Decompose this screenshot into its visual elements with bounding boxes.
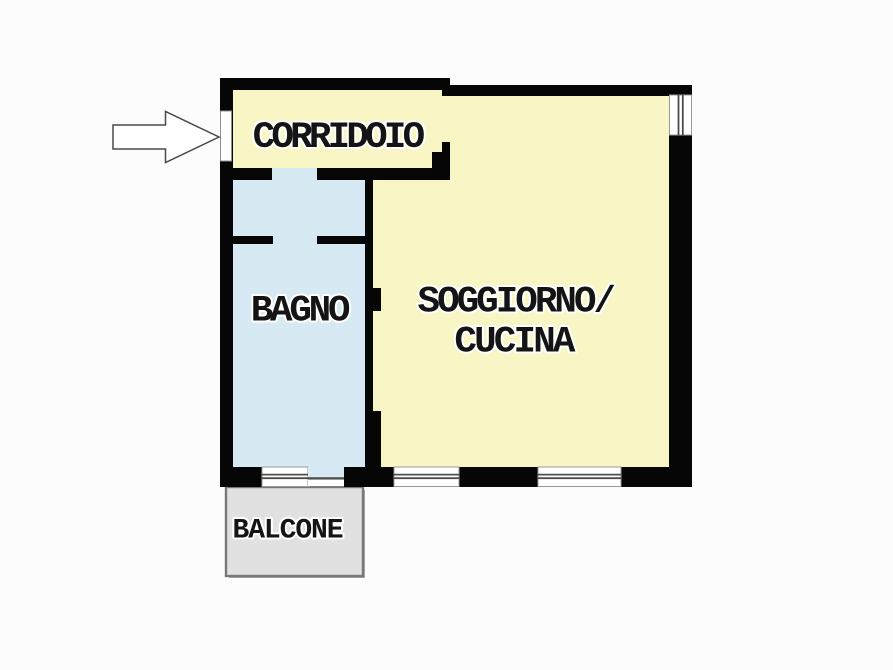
svg-text:CUCINA: CUCINA (454, 322, 576, 364)
svg-text:SOGGIORNO/: SOGGIORNO/ (418, 282, 615, 324)
svg-text:CORRIDOIO: CORRIDOIO (253, 117, 425, 159)
svg-text:BAGNO: BAGNO (251, 290, 350, 332)
svg-text:BALCONE: BALCONE (233, 516, 343, 547)
